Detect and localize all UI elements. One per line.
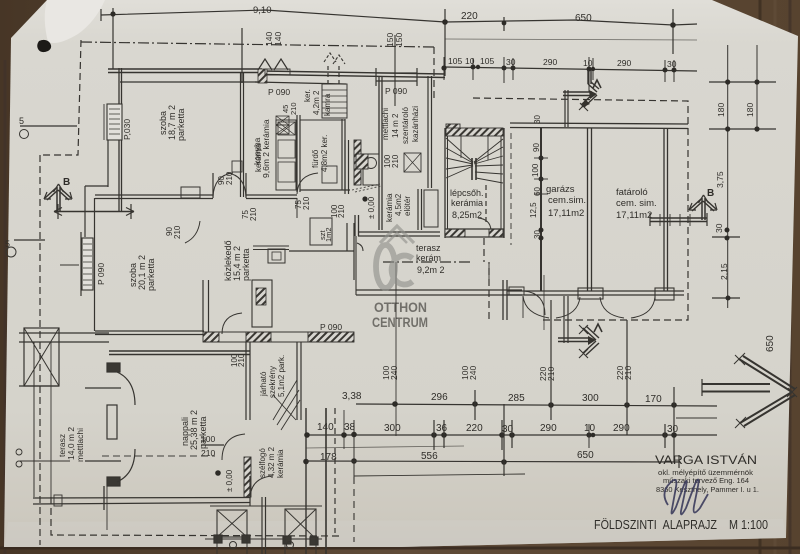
svg-text:210: 210 <box>249 207 258 221</box>
svg-text:8,25m2: 8,25m2 <box>452 210 482 220</box>
svg-text:3,75: 3,75 <box>715 171 725 188</box>
svg-text:P 090: P 090 <box>385 86 407 96</box>
svg-text:100: 100 <box>201 434 215 444</box>
svg-text:kerámia: kerámia <box>254 143 263 172</box>
svg-text:140: 140 <box>273 32 283 46</box>
svg-text:9,2m 2: 9,2m 2 <box>417 265 445 275</box>
svg-text:OTTHON: OTTHON <box>374 299 427 315</box>
svg-text:210: 210 <box>225 171 234 185</box>
svg-text:105: 105 <box>448 56 462 66</box>
svg-text:210: 210 <box>546 367 556 381</box>
svg-text:8360 Keszthely, Pammer I. u 1.: 8360 Keszthely, Pammer I. u 1. <box>656 485 759 494</box>
svg-text:5,1m2 park.: 5,1m2 park. <box>277 355 286 397</box>
svg-text:36: 36 <box>436 423 448 434</box>
svg-text:240: 240 <box>468 366 478 380</box>
svg-text:B: B <box>63 177 70 188</box>
svg-text:290: 290 <box>617 58 631 68</box>
svg-text:210: 210 <box>337 204 346 218</box>
svg-text:szekrény: szekrény <box>268 366 277 398</box>
svg-text:szélfogó: szélfogó <box>258 448 267 478</box>
svg-text:30: 30 <box>667 424 679 435</box>
svg-text:180: 180 <box>745 103 755 117</box>
svg-text:garázs: garázs <box>546 184 575 195</box>
svg-text:cem. sim.: cem. sim. <box>616 198 657 209</box>
svg-text:210: 210 <box>289 102 298 115</box>
svg-text:4,5m2: 4,5m2 <box>394 193 403 216</box>
svg-text:parketta: parketta <box>198 416 208 449</box>
svg-text:30: 30 <box>533 115 542 124</box>
svg-text:kazánházi: kazánházi <box>411 106 420 142</box>
svg-text:parketta: parketta <box>146 258 156 291</box>
svg-text:30: 30 <box>533 230 542 239</box>
svg-text:5: 5 <box>5 239 10 249</box>
svg-text:kerámia: kerámia <box>276 449 285 478</box>
svg-text:220: 220 <box>466 423 483 434</box>
svg-text:mettlachi: mettlachi <box>75 428 85 462</box>
svg-text:100: 100 <box>531 163 540 177</box>
svg-text:elötér: elötér <box>403 196 412 216</box>
svg-text:fatároló: fatároló <box>616 187 648 198</box>
svg-text:10: 10 <box>584 423 596 434</box>
svg-text:parketta: parketta <box>176 108 186 141</box>
svg-text:B: B <box>707 188 714 199</box>
svg-text:5: 5 <box>19 116 24 126</box>
svg-text:90: 90 <box>532 143 541 152</box>
svg-text:3,38: 3,38 <box>342 391 362 402</box>
svg-text:210: 210 <box>391 154 400 168</box>
svg-text:cem.sim.: cem.sim. <box>548 195 586 206</box>
svg-text:38: 38 <box>344 422 356 433</box>
svg-text:210: 210 <box>623 366 633 380</box>
svg-text:556: 556 <box>421 451 438 462</box>
svg-text:12,5: 12,5 <box>529 202 538 218</box>
svg-text:240: 240 <box>389 366 399 380</box>
svg-text:14 m 2: 14 m 2 <box>391 113 400 138</box>
svg-text:parketta: parketta <box>241 248 251 281</box>
svg-text:300: 300 <box>384 423 401 434</box>
svg-text:ker.: ker. <box>303 89 312 102</box>
svg-text:150: 150 <box>394 33 404 47</box>
svg-text:650: 650 <box>765 335 776 352</box>
svg-text:CENTRUM: CENTRUM <box>372 315 428 330</box>
svg-text:210: 210 <box>237 353 246 367</box>
svg-text:1m2: 1m2 <box>324 227 333 242</box>
svg-text:30: 30 <box>502 424 514 435</box>
svg-text:4,2m 2: 4,2m 2 <box>312 90 321 115</box>
svg-text:VARGA ISTVÁN: VARGA ISTVÁN <box>655 454 757 467</box>
svg-text:30: 30 <box>506 57 516 67</box>
svg-text:kamra: kamra <box>323 93 332 116</box>
svg-text:± 0,00: ± 0,00 <box>225 469 234 492</box>
svg-text:290: 290 <box>543 57 557 67</box>
svg-text:210: 210 <box>302 196 311 210</box>
svg-text:60: 60 <box>533 187 542 196</box>
svg-text:210: 210 <box>173 225 182 239</box>
svg-text:650: 650 <box>575 13 592 24</box>
svg-text:30: 30 <box>714 223 724 233</box>
svg-text:4,32 m 2: 4,32 m 2 <box>267 446 276 478</box>
svg-text:290: 290 <box>613 423 630 434</box>
svg-text:296: 296 <box>431 392 448 403</box>
svg-text:140: 140 <box>317 422 334 433</box>
svg-text:szentároló: szentároló <box>401 107 410 144</box>
svg-text:180: 180 <box>716 103 726 117</box>
svg-text:290: 290 <box>540 423 557 434</box>
svg-text:9,10: 9,10 <box>253 5 272 16</box>
svg-text:170: 170 <box>645 394 662 405</box>
svg-text:terasz: terasz <box>416 243 441 253</box>
svg-text:kerámia: kerámia <box>451 198 483 208</box>
svg-text:P 090: P 090 <box>320 322 342 332</box>
svg-text:220: 220 <box>461 11 478 22</box>
svg-text:285: 285 <box>508 393 525 404</box>
svg-text:30: 30 <box>667 59 677 69</box>
svg-text:P 090: P 090 <box>96 263 106 285</box>
svg-text:10: 10 <box>583 58 593 68</box>
svg-text:105: 105 <box>480 56 494 66</box>
svg-text:210: 210 <box>201 448 215 458</box>
svg-text:lépcsőh.: lépcsőh. <box>450 188 484 198</box>
svg-text:kerámia: kerámia <box>385 193 394 222</box>
svg-text:300: 300 <box>582 393 599 404</box>
svg-text:P,030: P,030 <box>122 119 132 140</box>
svg-text:178: 178 <box>320 452 337 463</box>
svg-text:járható: járható <box>259 371 268 397</box>
svg-text:10: 10 <box>465 56 475 66</box>
svg-text:4,8m2 ker.: 4,8m2 ker. <box>320 135 329 172</box>
svg-text:kerám: kerám <box>416 253 441 263</box>
svg-text:P 090: P 090 <box>268 87 290 97</box>
svg-text:2,15: 2,15 <box>719 263 729 280</box>
svg-text:17,11m2: 17,11m2 <box>616 210 652 221</box>
svg-text:17,11m2: 17,11m2 <box>548 208 584 219</box>
svg-text:mettlachi: mettlachi <box>381 108 390 140</box>
svg-text:fürdő: fürdő <box>311 149 320 168</box>
svg-text:± 0,00: ± 0,00 <box>367 196 376 219</box>
svg-text:M 1:100: M 1:100 <box>729 518 768 532</box>
svg-text:650: 650 <box>577 450 594 461</box>
svg-text:okl. mélyépítő üzemmérnök: okl. mélyépítő üzemmérnök <box>658 468 753 477</box>
svg-text:FÖLDSZINTI ALAPRAJZ: FÖLDSZINTI ALAPRAJZ <box>594 518 717 532</box>
